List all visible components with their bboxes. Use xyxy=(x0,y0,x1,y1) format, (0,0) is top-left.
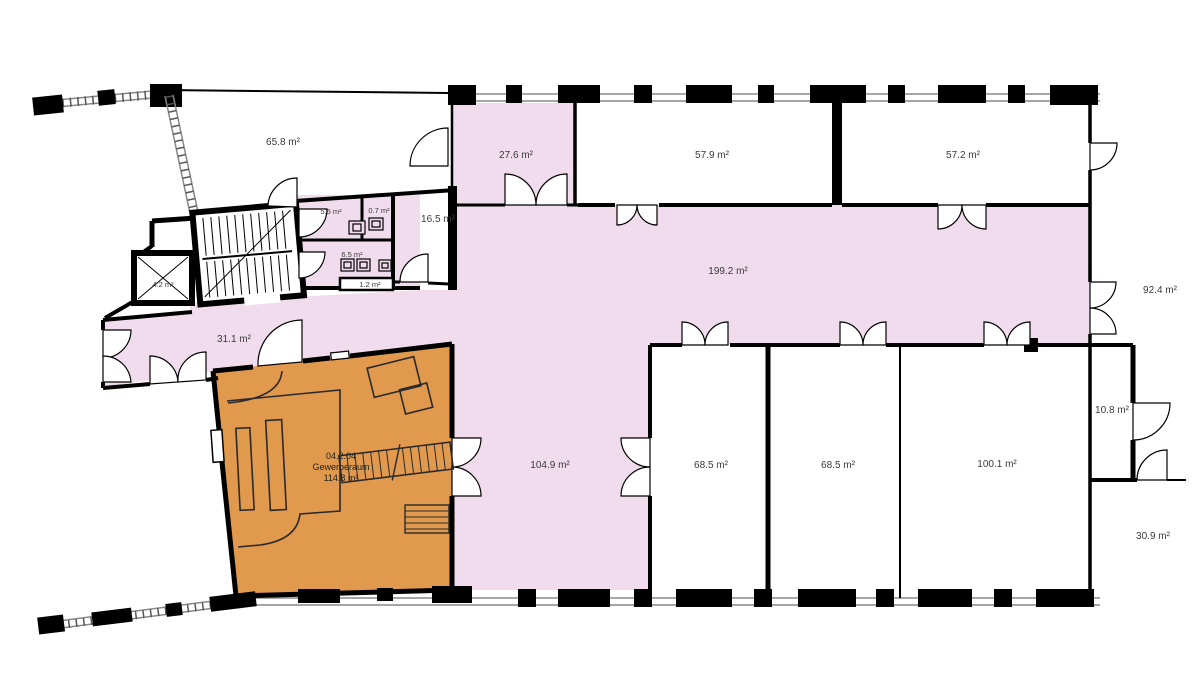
area-label-199-2: 199.2 m² xyxy=(708,266,748,277)
glazed-facade-top-pillars xyxy=(448,85,1098,105)
unit-name: Gewerberaum xyxy=(312,462,369,472)
area-label-65-8: 65.8 m² xyxy=(266,137,301,148)
area-label-4-2: 4.2 m² xyxy=(152,280,174,289)
highlight-areas xyxy=(103,103,1090,596)
area-label-27-6: 27.6 m² xyxy=(499,150,534,161)
area-label-92-4: 92.4 m² xyxy=(1143,285,1178,296)
staircase-core xyxy=(192,204,304,310)
area-label-31-1: 31.1 m² xyxy=(217,334,252,345)
area-label-1-2: 1.2 m² xyxy=(359,280,381,289)
area-label-68-5-b: 68.5 m² xyxy=(821,460,856,471)
glazed-facade-top-left xyxy=(32,84,182,116)
area-label-57-9: 57.9 m² xyxy=(695,150,730,161)
floor-plan-canvas: 65.8 m² 27.6 m² 57.9 m² 57.2 m² 92.4 m² … xyxy=(0,0,1200,675)
area-label-6-5: 6.5 m² xyxy=(341,250,363,259)
elevator xyxy=(134,253,192,303)
floor-plan-page: 65.8 m² 27.6 m² 57.9 m² 57.2 m² 92.4 m² … xyxy=(0,0,1200,675)
unit-area: 114.8 m² xyxy=(324,473,359,483)
area-label-100-1: 100.1 m² xyxy=(977,459,1017,470)
area-label-68-5-a: 68.5 m² xyxy=(694,460,729,471)
area-label-0-7: 0.7 m² xyxy=(368,206,390,215)
area-label-30-9: 30.9 m² xyxy=(1136,531,1171,542)
area-label-10-8: 10.8 m² xyxy=(1095,405,1130,416)
area-label-104-9: 104.9 m² xyxy=(530,460,570,471)
unit-number: 04.2.04 xyxy=(326,451,356,461)
area-label-57-2: 57.2 m² xyxy=(946,150,981,161)
zone-corridor-104-9[interactable] xyxy=(452,205,650,590)
glazed-facade-left-diagonal xyxy=(165,95,199,218)
area-label-5-5: 5.5 m² xyxy=(320,207,342,216)
zone-corridor-199-2[interactable] xyxy=(575,205,1090,345)
area-label-16-5: 16.5 m² xyxy=(421,214,456,225)
